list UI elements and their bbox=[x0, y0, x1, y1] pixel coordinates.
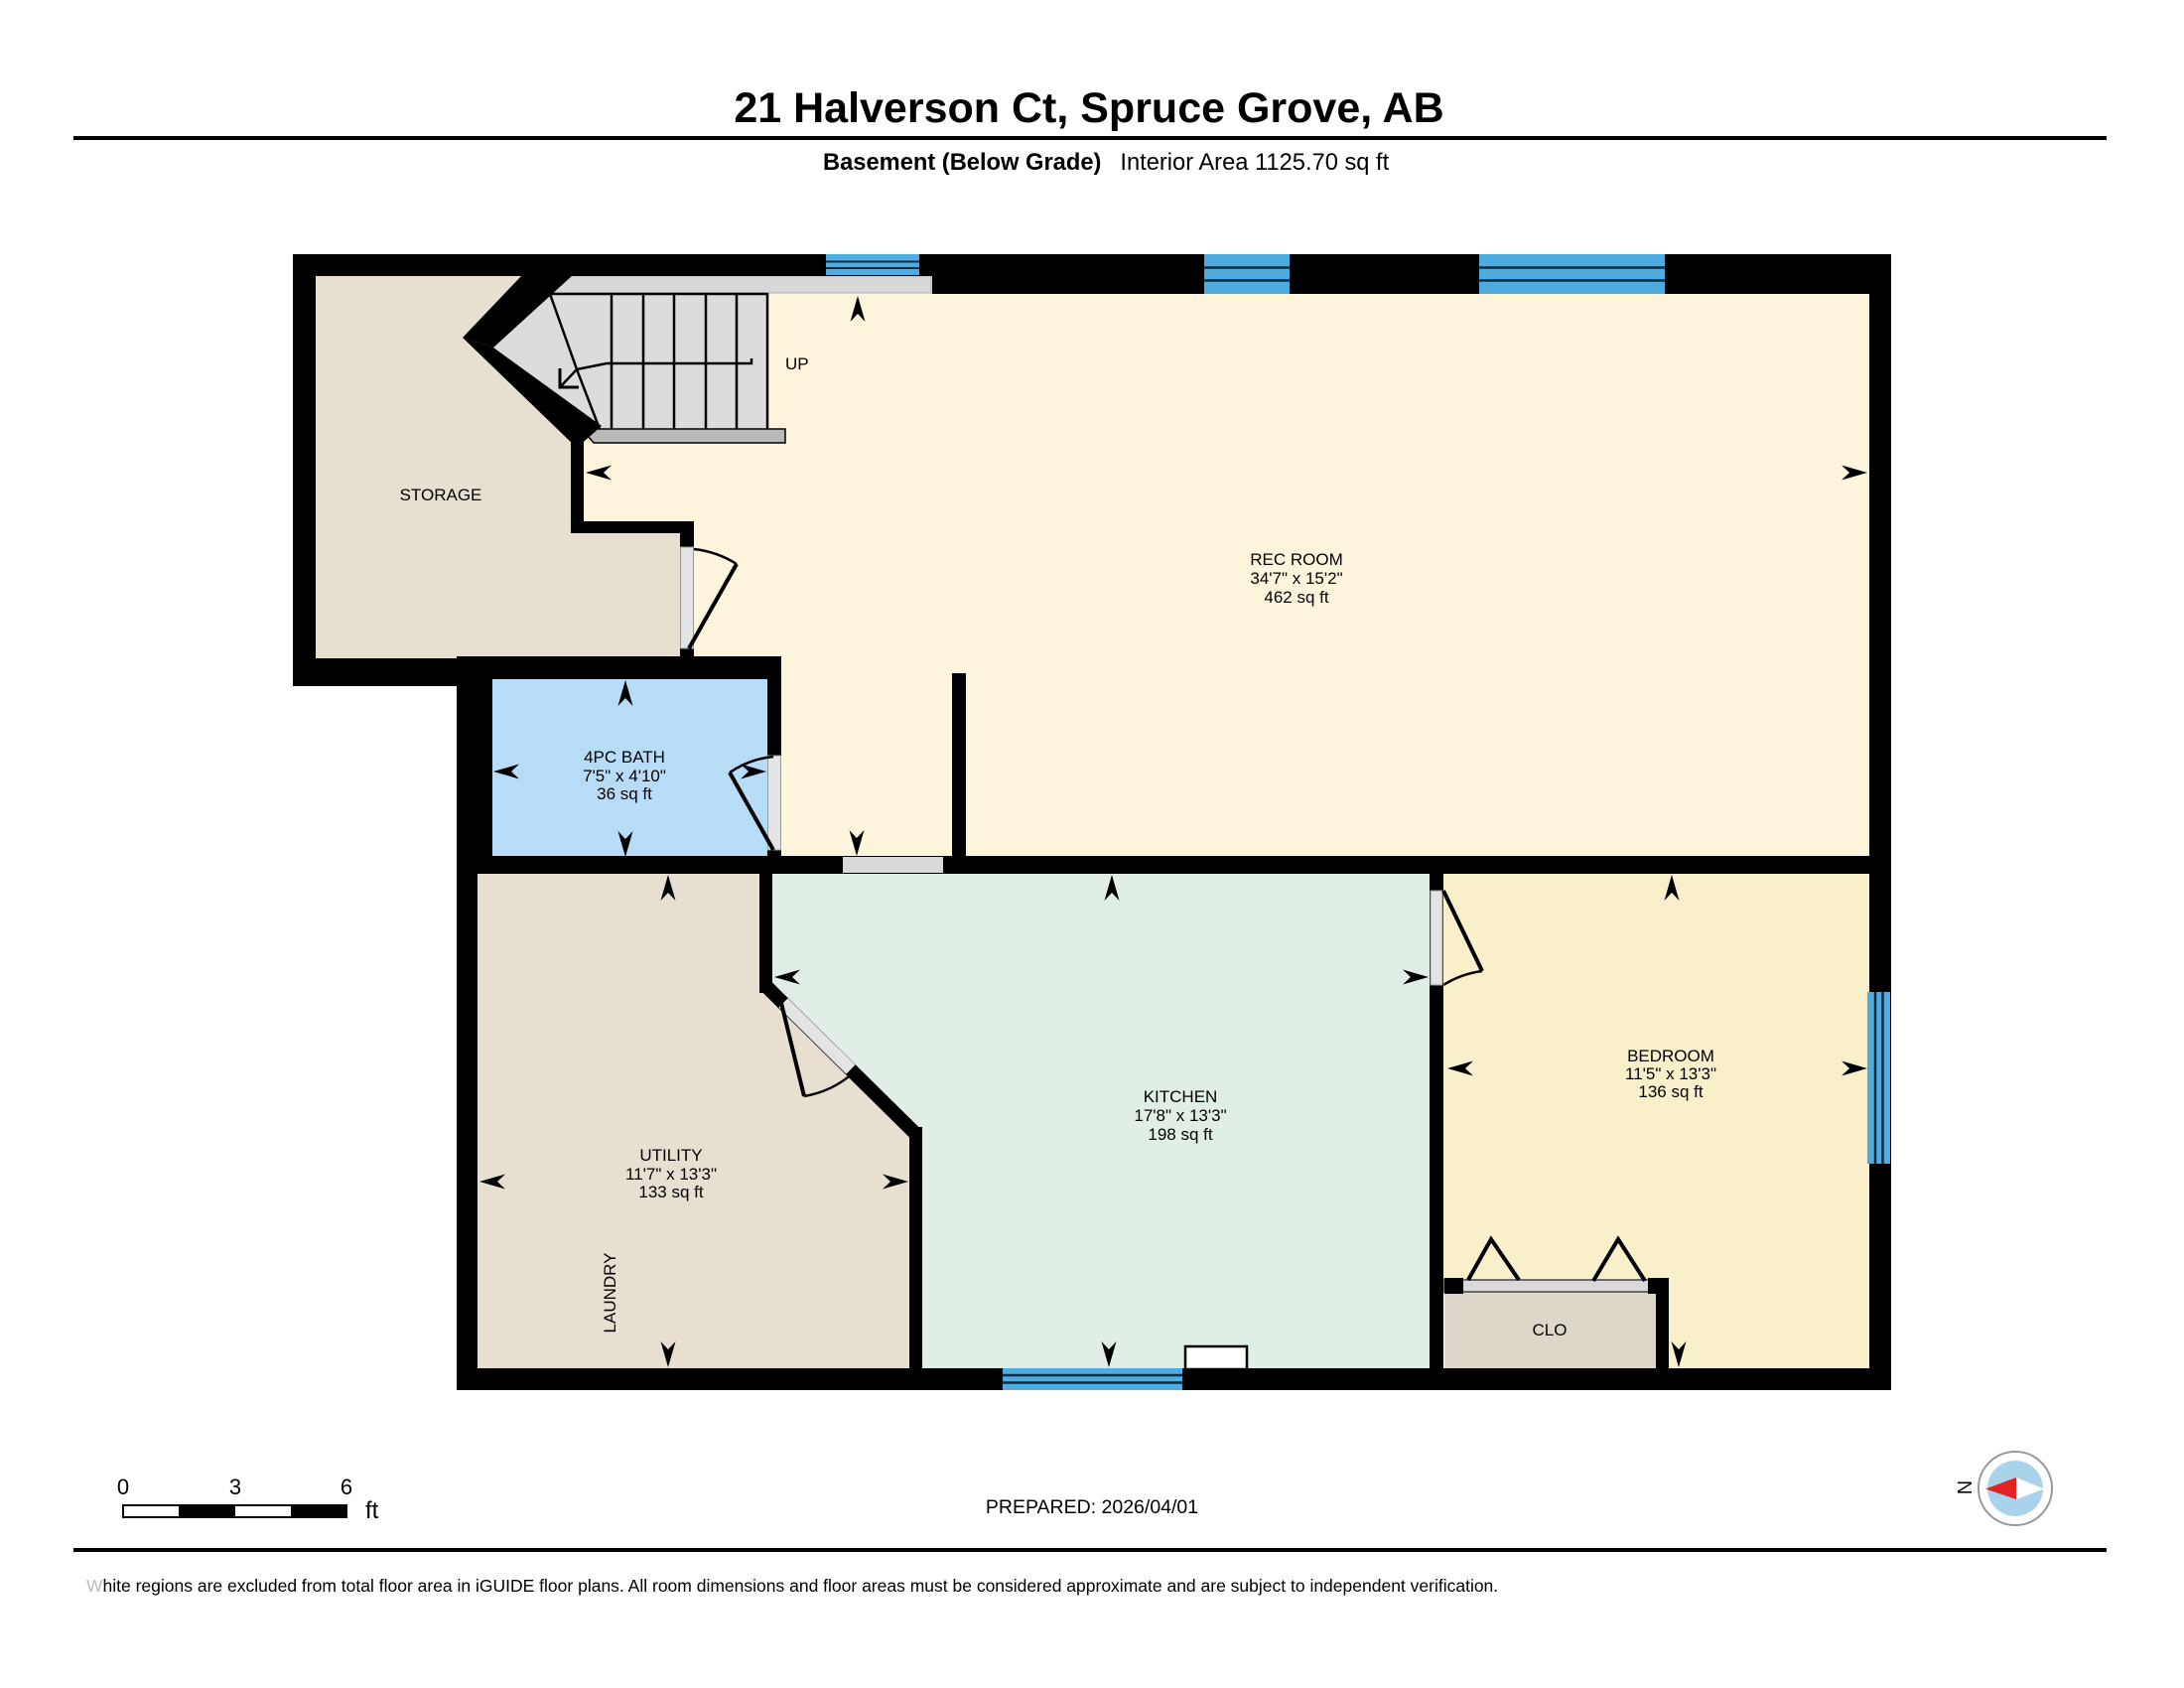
svg-text:11'5" x 13'3": 11'5" x 13'3" bbox=[1625, 1064, 1716, 1083]
svg-text:KITCHEN: KITCHEN bbox=[1144, 1087, 1218, 1106]
svg-text:198 sq ft: 198 sq ft bbox=[1148, 1125, 1212, 1144]
svg-text:N: N bbox=[1955, 1480, 1977, 1494]
svg-text:0: 0 bbox=[117, 1475, 129, 1499]
svg-text:PREPARED: 2026/04/01: PREPARED: 2026/04/01 bbox=[986, 1496, 1198, 1518]
svg-text:3: 3 bbox=[229, 1475, 241, 1499]
svg-text:7'5" x 4'10": 7'5" x 4'10" bbox=[583, 767, 666, 785]
svg-text:34'7" x 15'2": 34'7" x 15'2" bbox=[1250, 569, 1342, 588]
svg-text:17'8" x 13'3": 17'8" x 13'3" bbox=[1134, 1106, 1226, 1125]
svg-text:CLO: CLO bbox=[1533, 1321, 1568, 1339]
svg-text:462 sq ft: 462 sq ft bbox=[1264, 588, 1328, 607]
svg-text:UTILITY: UTILITY bbox=[639, 1146, 702, 1165]
svg-text:White regions are excluded fro: White regions are excluded from total fl… bbox=[86, 1576, 1498, 1596]
svg-text:36 sq ft: 36 sq ft bbox=[597, 784, 652, 803]
svg-text:UP: UP bbox=[785, 354, 809, 373]
svg-text:BEDROOM: BEDROOM bbox=[1627, 1047, 1714, 1065]
svg-text:21 Halverson Ct, Spruce Grove,: 21 Halverson Ct, Spruce Grove, AB bbox=[734, 84, 1443, 132]
svg-text:11'7" x 13'3": 11'7" x 13'3" bbox=[625, 1165, 717, 1184]
svg-text:ft: ft bbox=[365, 1497, 379, 1524]
svg-text:REC ROOM: REC ROOM bbox=[1250, 550, 1343, 569]
svg-text:133 sq ft: 133 sq ft bbox=[638, 1183, 703, 1201]
svg-text:LAUNDRY: LAUNDRY bbox=[601, 1253, 619, 1334]
svg-text:136 sq ft: 136 sq ft bbox=[1638, 1082, 1703, 1101]
svg-text:STORAGE: STORAGE bbox=[400, 486, 482, 504]
svg-text:6: 6 bbox=[341, 1475, 352, 1499]
svg-text:4PC BATH: 4PC BATH bbox=[584, 748, 665, 767]
